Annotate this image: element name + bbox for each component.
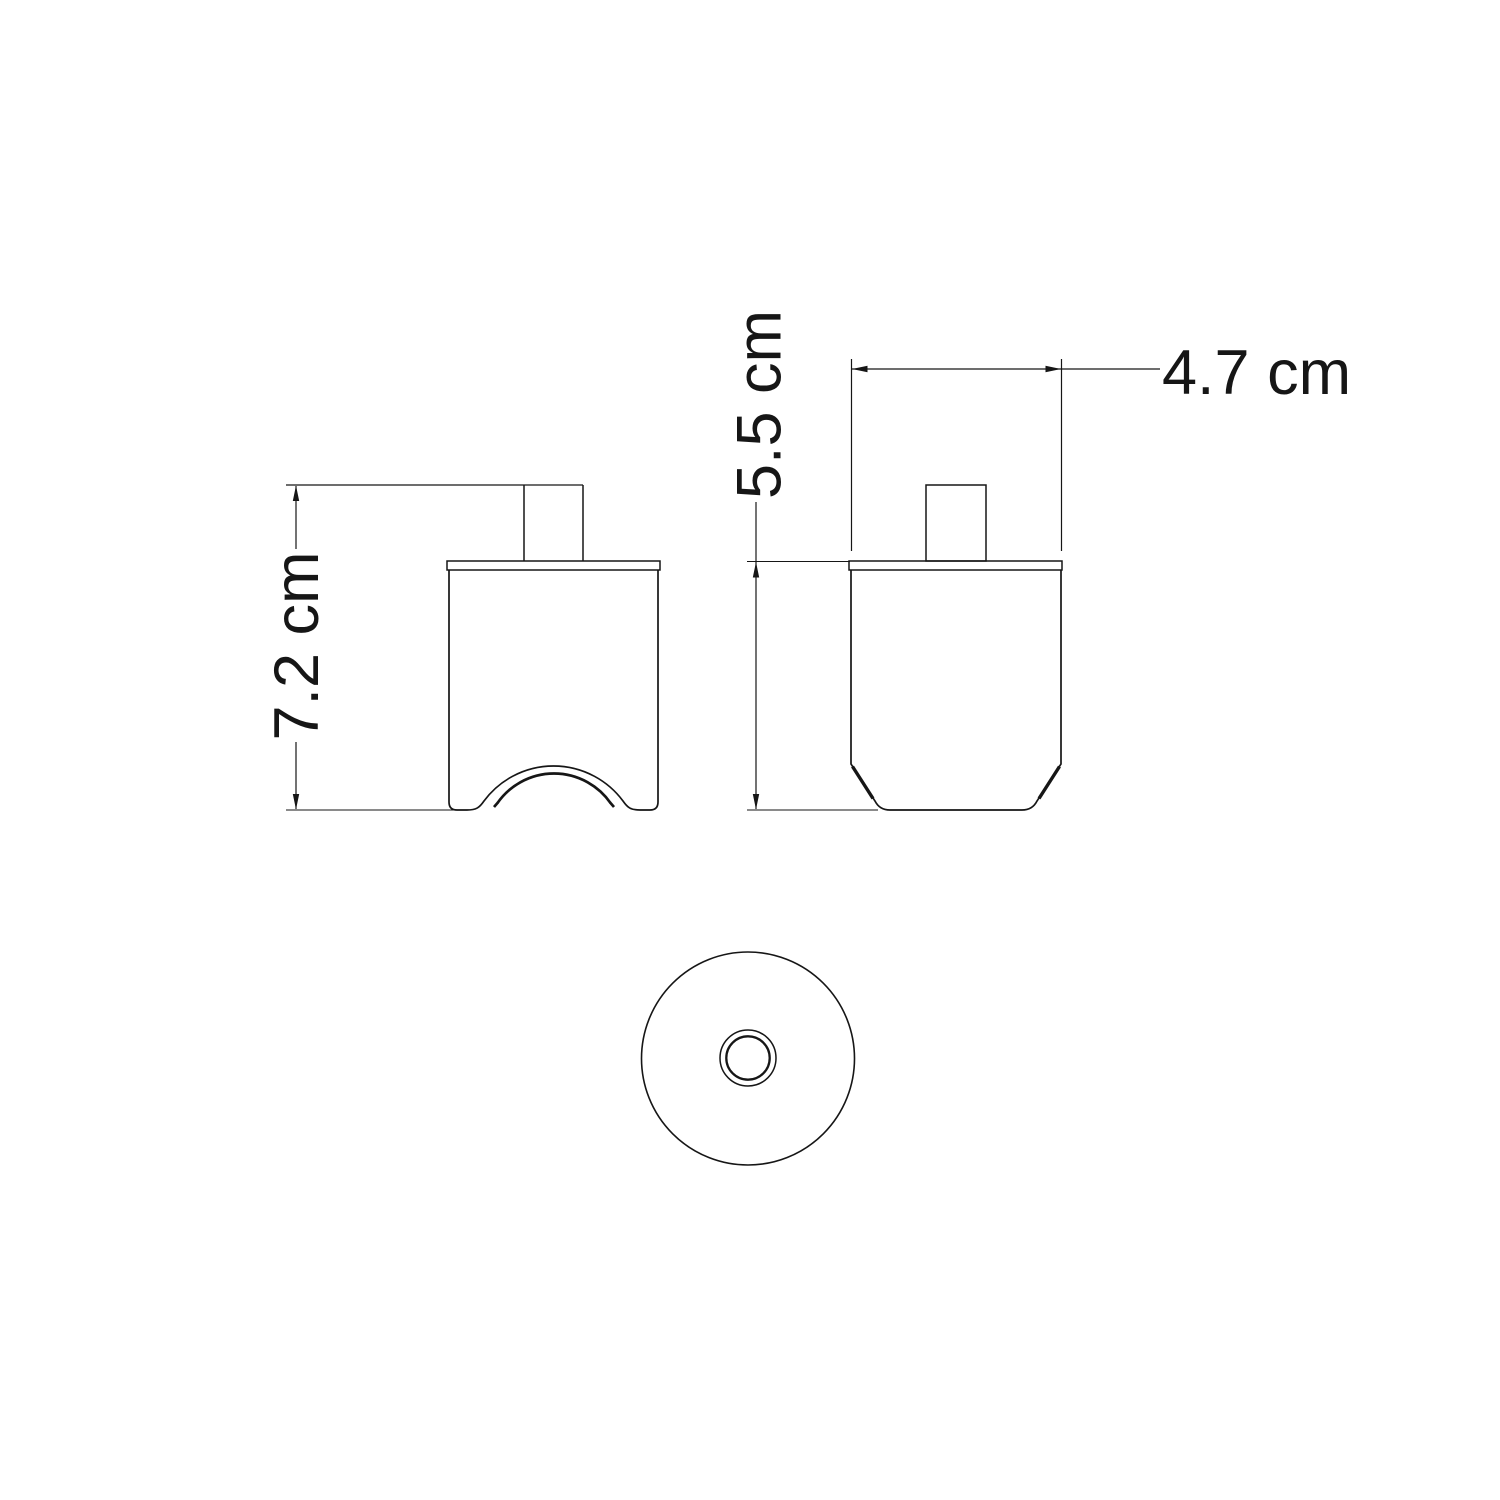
svg-text:4.7 cm: 4.7 cm bbox=[1162, 338, 1351, 408]
svg-text:7.2 cm: 7.2 cm bbox=[262, 551, 332, 740]
svg-text:5.5 cm: 5.5 cm bbox=[725, 310, 795, 499]
